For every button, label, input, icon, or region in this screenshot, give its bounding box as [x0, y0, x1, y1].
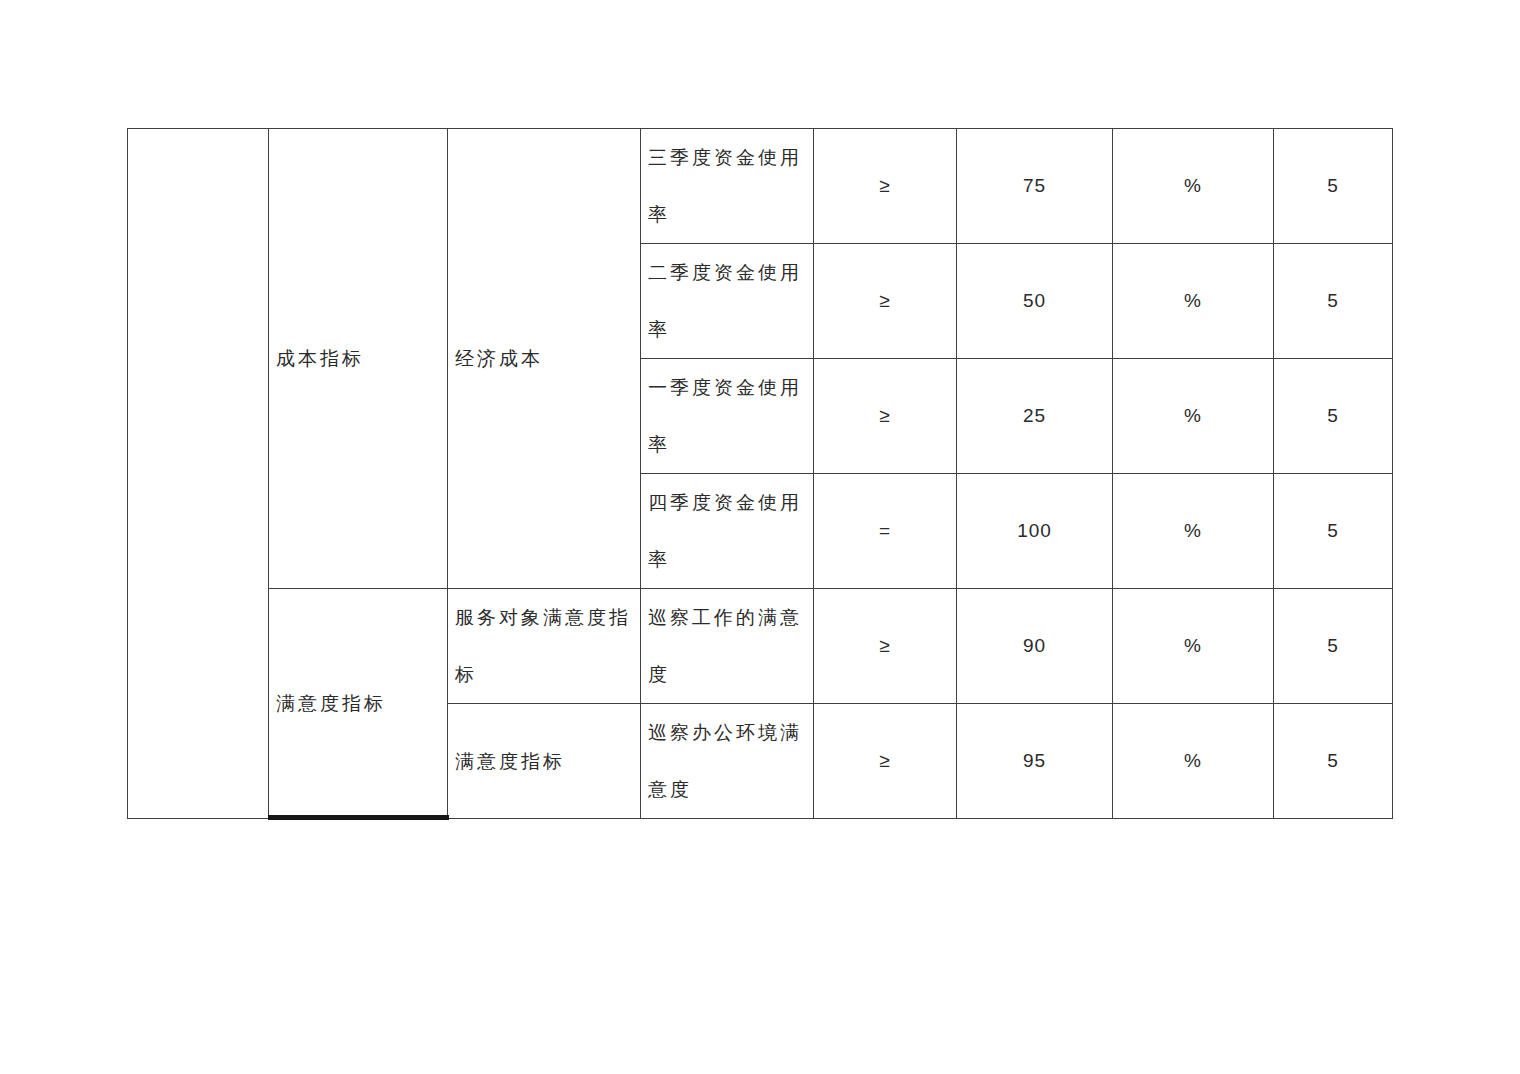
performance-indicator-table: 成本指标 经济成本 三季度资金使用率 ≥ 75 % 5 二季度资金使用率 ≥ 5…: [127, 128, 1393, 819]
operator-cell: ≥: [814, 359, 957, 474]
unit-cell: %: [1113, 589, 1274, 704]
document-page: { "colors": { "page_background": "#fffff…: [0, 0, 1520, 1074]
unit-cell: %: [1113, 474, 1274, 589]
indicator-cell: 一季度资金使用率: [641, 359, 814, 474]
subcategory-cell: 服务对象满意度指标: [448, 589, 641, 704]
value-cell: 95: [957, 704, 1113, 819]
indicator-cell: 巡察工作的满意度: [641, 589, 814, 704]
operator-cell: ≥: [814, 704, 957, 819]
score-cell: 5: [1274, 704, 1393, 819]
score-cell: 5: [1274, 359, 1393, 474]
value-cell: 25: [957, 359, 1113, 474]
indicator-cell: 四季度资金使用率: [641, 474, 814, 589]
value-cell: 100: [957, 474, 1113, 589]
operator-cell: ≥: [814, 129, 957, 244]
unit-cell: %: [1113, 129, 1274, 244]
category-cell-satisfaction: 满意度指标: [269, 589, 448, 819]
page-break-thick-border: [268, 815, 449, 820]
operator-cell: ≥: [814, 589, 957, 704]
value-cell: 50: [957, 244, 1113, 359]
blank-spanning-cell: [128, 129, 269, 819]
operator-cell: =: [814, 474, 957, 589]
indicator-cell: 巡察办公环境满意度: [641, 704, 814, 819]
value-cell: 90: [957, 589, 1113, 704]
score-cell: 5: [1274, 129, 1393, 244]
operator-cell: ≥: [814, 244, 957, 359]
value-cell: 75: [957, 129, 1113, 244]
subcategory-cell-economic-cost: 经济成本: [448, 129, 641, 589]
subcategory-cell: 满意度指标: [448, 704, 641, 819]
unit-cell: %: [1113, 704, 1274, 819]
unit-cell: %: [1113, 244, 1274, 359]
indicator-cell: 三季度资金使用率: [641, 129, 814, 244]
table-row: 满意度指标 服务对象满意度指标 巡察工作的满意度 ≥ 90 % 5: [128, 589, 1393, 704]
score-cell: 5: [1274, 244, 1393, 359]
indicator-cell: 二季度资金使用率: [641, 244, 814, 359]
score-cell: 5: [1274, 474, 1393, 589]
score-cell: 5: [1274, 589, 1393, 704]
unit-cell: %: [1113, 359, 1274, 474]
category-cell-cost: 成本指标: [269, 129, 448, 589]
table-row: 成本指标 经济成本 三季度资金使用率 ≥ 75 % 5: [128, 129, 1393, 244]
